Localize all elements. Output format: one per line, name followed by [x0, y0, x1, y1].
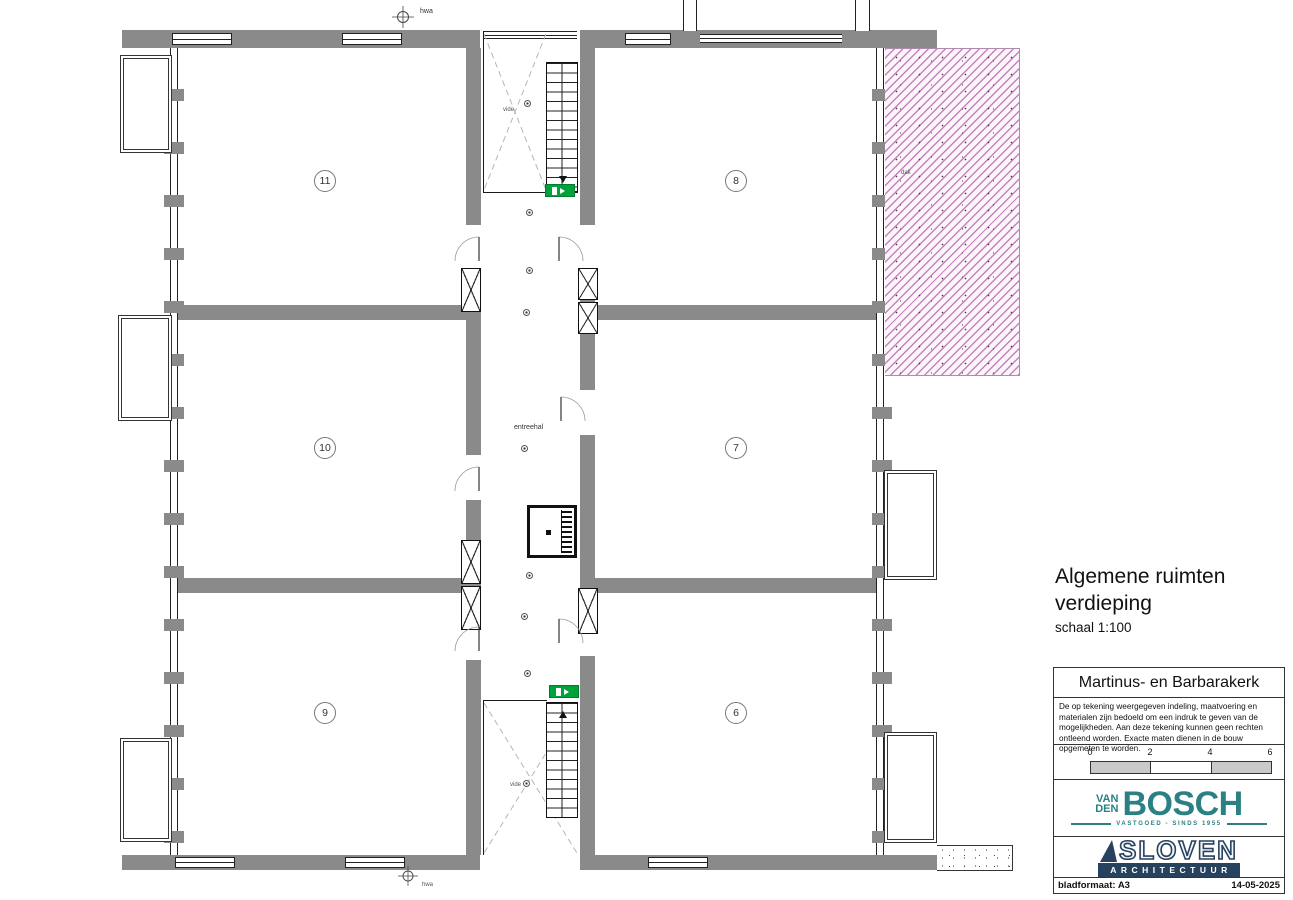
- tagline-rule: [1227, 823, 1267, 825]
- facade-piers-left: [164, 48, 184, 855]
- duct-shaft: [461, 586, 481, 630]
- exit-sign-icon: [545, 184, 575, 197]
- roof-label: dak: [901, 170, 911, 176]
- speckled-strip: [937, 845, 1013, 871]
- elevator: [527, 505, 577, 558]
- room-number-circle: 10: [314, 437, 336, 459]
- drawing-title: Algemene ruimten verdieping: [1055, 563, 1290, 617]
- room-number-circle: 6: [725, 702, 747, 724]
- window-opening: [648, 857, 708, 868]
- vdb-logo-top: VAN DEN BOSCH: [1095, 789, 1243, 819]
- vdb-den: DEN: [1095, 804, 1118, 814]
- duct-shaft: [461, 540, 481, 584]
- exit-sign-icon: [549, 685, 579, 698]
- scale-bar: 0 2 4 6: [1054, 745, 1284, 780]
- drawing-title-line1: Algemene ruimten: [1055, 563, 1290, 590]
- window-bay: [884, 470, 937, 580]
- ceiling-symbol: [526, 267, 533, 274]
- window-opening: [345, 857, 405, 868]
- vide-label: vide: [510, 782, 521, 788]
- window-opening: [175, 857, 235, 868]
- scale-tick-label: 2: [1147, 747, 1152, 757]
- elevator-door: [561, 510, 572, 553]
- scale-bar-segment: [1211, 762, 1271, 773]
- hwa-label: hwa: [422, 882, 433, 888]
- ceiling-symbol: [521, 445, 528, 452]
- page: dak vide: [0, 0, 1293, 900]
- exit-door-glyph: [552, 187, 557, 195]
- room-number-circle: 7: [725, 437, 747, 459]
- entreehal-label: entreehal: [514, 424, 543, 431]
- scale-bar-segment: [1150, 762, 1210, 773]
- door-swing-icon: [558, 618, 584, 644]
- vdb-logo-lockup: VAN DEN BOSCH VASTGOED - SINDS 1955: [1071, 789, 1267, 827]
- vide-x-icon: [484, 34, 546, 190]
- drawing-date: 14-05-2025: [1231, 880, 1280, 891]
- stair-arrow: [559, 707, 567, 718]
- exit-arrow-glyph: [560, 188, 568, 194]
- glazing-strip: [700, 34, 842, 43]
- room-number-circle: 8: [725, 170, 747, 192]
- window-bay: [884, 732, 937, 843]
- scale-bar-graphic: [1090, 761, 1272, 774]
- scale-bar-segment: [1091, 762, 1150, 773]
- hwa-drain-icon: [392, 6, 414, 28]
- exit-arrow-glyph: [564, 689, 572, 695]
- floor-plan: dak vide: [0, 0, 1050, 900]
- window-opening: [172, 33, 232, 45]
- wall-stub: [855, 0, 870, 31]
- staircase-bottom: [546, 702, 578, 818]
- sheet-format: bladformaat: A3: [1058, 880, 1130, 891]
- corridor-wall-right: [580, 48, 595, 855]
- hwa-drain-icon: [398, 866, 418, 886]
- drawing-title-area: Algemene ruimten verdieping schaal 1:100: [1055, 563, 1290, 635]
- vdb-tagline-row: VASTGOED - SINDS 1955: [1071, 821, 1267, 827]
- room-number-circle: 11: [314, 170, 336, 192]
- hwa-label: hwa: [420, 8, 433, 15]
- roof-hatch-area: [885, 48, 1020, 376]
- wall-segment: [580, 855, 937, 870]
- ceiling-symbol: [526, 209, 533, 216]
- title-block-footer: bladformaat: A3 14-05-2025: [1054, 878, 1284, 893]
- logo-sloven: SLOVEN ARCHITECTUUR: [1054, 837, 1284, 878]
- duct-shaft: [578, 268, 598, 300]
- wall-segment: [594, 305, 884, 320]
- scale-note: schaal 1:100: [1055, 620, 1290, 635]
- ceiling-symbol: [524, 100, 531, 107]
- wall-segment: [594, 578, 884, 593]
- door-swing-icon: [558, 236, 584, 262]
- sloven-logo-top: SLOVEN: [1100, 838, 1238, 862]
- wall-segment: [172, 578, 481, 593]
- duct-shaft: [461, 268, 481, 312]
- window-opening: [342, 33, 402, 45]
- vdb-tagline: VASTGOED - SINDS 1955: [1116, 821, 1222, 827]
- wall-segment: [172, 305, 481, 320]
- tagline-rule: [1071, 823, 1111, 825]
- title-block: Martinus- en Barbarakerk De op tekening …: [1053, 667, 1285, 894]
- logo-van-den-bosch: VAN DEN BOSCH VASTGOED - SINDS 1955: [1054, 780, 1284, 837]
- vide-label: vide: [503, 107, 514, 113]
- stairwell-boundary: [483, 700, 547, 701]
- scale-tick-label: 4: [1207, 747, 1212, 757]
- vdb-van-den: VAN DEN: [1095, 794, 1118, 814]
- window-bay: [120, 55, 172, 153]
- exit-door-glyph: [556, 688, 561, 696]
- corridor-wall-left: [466, 48, 481, 855]
- door-swing-icon: [454, 236, 480, 262]
- window-opening: [625, 33, 671, 45]
- sloven-name: SLOVEN: [1119, 838, 1238, 862]
- sloven-subtitle: ARCHITECTUUR: [1098, 863, 1240, 877]
- door-swing-icon: [454, 466, 480, 492]
- ceiling-symbol: [526, 572, 533, 579]
- drawing-title-line2: verdieping: [1055, 590, 1290, 617]
- room-number-circle: 9: [314, 702, 336, 724]
- window-bay: [120, 738, 172, 842]
- window-bay: [118, 315, 172, 421]
- ceiling-symbol: [523, 309, 530, 316]
- project-name: Martinus- en Barbarakerk: [1054, 668, 1284, 698]
- vdb-bosch: BOSCH: [1122, 789, 1242, 819]
- ceiling-symbol: [523, 780, 530, 787]
- sloven-triangle-icon: [1100, 840, 1117, 862]
- ceiling-symbol: [524, 670, 531, 677]
- wall-stub: [683, 0, 697, 31]
- disclaimer-text: De op tekening weergegeven indeling, maa…: [1054, 698, 1284, 745]
- scale-tick-label: 0: [1087, 747, 1092, 757]
- scale-tick-label: 6: [1267, 747, 1272, 757]
- elevator-symbol: [546, 530, 551, 535]
- door-swing-icon: [560, 396, 586, 422]
- staircase-top: [546, 62, 578, 192]
- door-swing-icon: [454, 626, 480, 652]
- ceiling-symbol: [521, 613, 528, 620]
- duct-shaft: [578, 302, 598, 334]
